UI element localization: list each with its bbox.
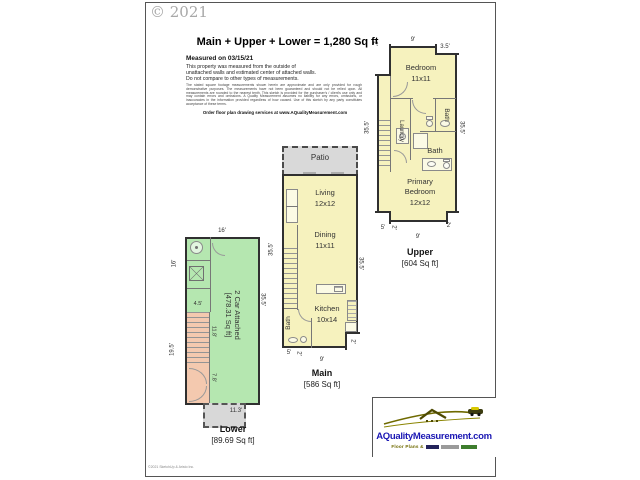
main-dim-bottom: 9' — [310, 357, 334, 364]
main-dim-bottom-left-a: 5' — [285, 350, 293, 357]
furnace-x-icon — [189, 266, 204, 281]
lower-wall — [210, 237, 211, 312]
upper-small-bath-label: Bath — [441, 103, 451, 127]
lower-dim-inner-b: 11.8' — [210, 322, 217, 342]
upper-dim-bottom-left-b: 2' — [390, 224, 397, 232]
main-plan-title: Main — [292, 368, 352, 378]
logo-badge-green — [461, 445, 477, 449]
copyright-watermark: © 2021 — [150, 3, 208, 21]
upper-notch-bottom-left — [375, 211, 391, 224]
upper-plan-title: Upper — [390, 247, 450, 257]
upper-bath-label: Bath — [420, 146, 450, 156]
lower-dim-bottom: 11.3' — [222, 408, 250, 415]
upper-dim-right: 35.5' — [458, 117, 465, 139]
upper-dim-bottom-left-a: 5' — [378, 225, 388, 232]
toilet-icon — [300, 336, 307, 343]
lower-dim-top: 16' — [212, 228, 232, 235]
upper-bedroom-size: 11x11 — [395, 74, 447, 84]
upper-laundry-label: Laundry — [396, 111, 406, 151]
main-dim-left: 35.5' — [269, 239, 276, 261]
lower-wall — [187, 260, 211, 261]
lower-plan-title: Lower — [203, 424, 263, 434]
logo-car-icon — [468, 407, 483, 416]
lower-dim-inner-c: 7.8' — [210, 369, 217, 387]
main-dining-label: Dining — [300, 230, 350, 240]
upper-notch-top-left — [375, 44, 391, 76]
main-dim-right: 35.5' — [357, 253, 364, 275]
upper-bedroom-label: Bedroom — [395, 63, 447, 73]
upper-dim-left: 35.5' — [365, 117, 372, 139]
upper-stairs — [379, 120, 390, 170]
water-heater-dot-icon — [195, 246, 198, 249]
main-living-label: Living — [300, 188, 350, 198]
lower-dim-inner-a: 4.5' — [188, 301, 208, 308]
toilet-icon — [426, 120, 433, 127]
main-kitchen-label: Kitchen — [302, 304, 352, 314]
lower-wall — [187, 288, 211, 289]
main-living-size: 12x12 — [300, 199, 350, 209]
footer-fine-print: ©2021 SketchUp & Aristo Inc. — [148, 465, 194, 469]
measurement-note: This property was measured from the outs… — [186, 64, 366, 83]
garage-area-label: [478.31 Sq ft] — [224, 278, 233, 352]
main-dim-bottom-left-b: 2' — [295, 350, 302, 358]
toilet-icon — [443, 162, 450, 169]
sink-icon — [427, 161, 436, 167]
measurement-note-line3: Do not compare to other types of measure… — [186, 76, 366, 82]
upper-dim-top-left: 2' — [371, 39, 378, 49]
upper-dim-top: 9' — [403, 37, 423, 44]
logo-badge-gray — [441, 445, 459, 449]
lower-dim-left-upper: 16' — [172, 256, 179, 272]
upper-wall — [410, 98, 411, 160]
floor-plan-sheet-page: © 2021 Main + Upper + Lower = 1,280 Sq f… — [0, 0, 640, 480]
logo-tagline-text: Floor Plans & — [391, 444, 423, 449]
lower-plan-area: [89.69 Sq ft] — [203, 436, 263, 445]
fine-print-disclaimer: The stated square footage measurements s… — [186, 84, 362, 107]
main-stairs — [284, 248, 297, 306]
garage-label-block: 2 Car Attached [478.31 Sq ft] — [224, 278, 242, 352]
main-wall — [286, 206, 298, 207]
main-dim-bottom-right: 2' — [349, 338, 356, 346]
main-patio-label: Patio — [292, 153, 348, 163]
upper-plan-area: [604 Sq ft] — [390, 259, 450, 268]
measured-date: Measured on 03/15/21 — [186, 55, 253, 62]
lower-stairs — [187, 312, 209, 366]
main-dining-size: 11x11 — [300, 241, 350, 251]
main-wall — [297, 225, 298, 310]
logo-roof-swoosh-icon — [382, 406, 486, 432]
order-services-line: Order floor plan drawing services at www… — [186, 110, 364, 115]
garage-label: 2 Car Attached — [233, 278, 242, 352]
upper-dim-bottom-right: 2' — [444, 223, 454, 230]
upper-primary-bedroom-label: Primary Bedroom — [394, 177, 446, 197]
upper-dim-top-right: 3.5' — [437, 44, 453, 51]
main-wall — [284, 308, 298, 309]
sink-icon — [288, 337, 298, 343]
upper-wall — [420, 131, 456, 132]
logo-site-text: AQualityMeasurement.com — [374, 431, 494, 442]
main-kitchen-size: 10x14 — [302, 315, 352, 325]
cooktop-icon — [334, 286, 343, 292]
logo-tagline-row: Floor Plans & — [378, 444, 490, 449]
upper-dim-bottom: 9' — [408, 234, 428, 241]
lower-dim-right: 35.5' — [259, 289, 266, 311]
lower-dim-left-lower: 19.5' — [170, 339, 177, 361]
total-area-title: Main + Upper + Lower = 1,280 Sq ft — [180, 36, 395, 48]
logo-badge-dark — [426, 445, 439, 449]
upper-wall — [433, 98, 456, 99]
main-plan-area: [586 Sq ft] — [292, 380, 352, 389]
upper-wall — [390, 76, 391, 172]
upper-primary-bedroom-size: 12x12 — [394, 198, 446, 208]
upper-wall — [435, 98, 436, 132]
main-bath-label: Bath — [284, 311, 294, 335]
